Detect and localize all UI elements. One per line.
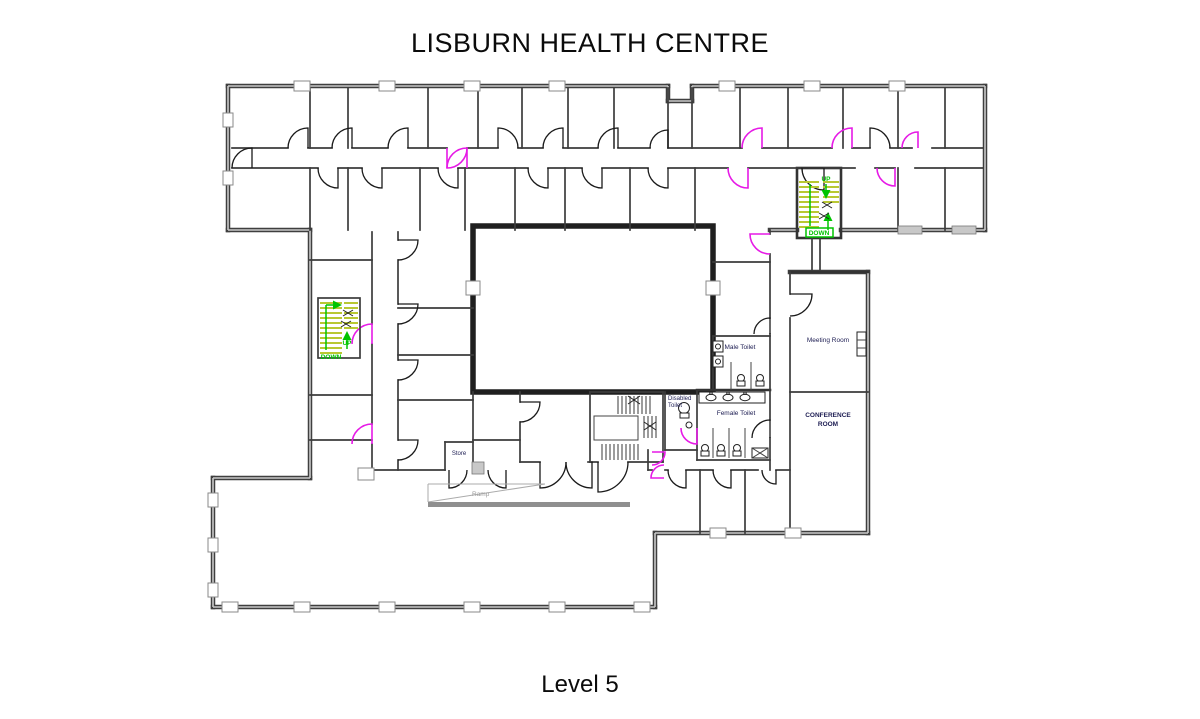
entrance-ramp: [428, 484, 630, 507]
right-stair-up-label: UP: [821, 176, 831, 183]
store-label: Store: [452, 451, 467, 457]
ramp-label: Ramp: [472, 491, 490, 498]
male-toilet-label: Male Toilet: [725, 344, 756, 351]
left-stair-down-label: DOWN: [321, 354, 342, 361]
column-markers: [208, 81, 905, 612]
floor-plan-page: LISBURN HEALTH CENTRE Meeting Room CONF: [0, 0, 1200, 719]
left-stair-up-label: UP: [342, 340, 352, 347]
outer-walls: [213, 86, 985, 607]
right-staircase: [799, 182, 839, 237]
central-staircase: [594, 396, 656, 460]
atrium-void: [473, 226, 713, 392]
floor-plan-drawing: Meeting Room CONFERENCE ROOM Male Toilet…: [0, 0, 1200, 719]
conference-room-label-line1: CONFERENCE: [805, 412, 851, 419]
level-label: Level 5: [0, 671, 1160, 699]
left-staircase: [318, 298, 360, 358]
right-stair-down-label: DOWN: [809, 230, 830, 237]
disabled-toilet-label-line2: Toilet: [668, 403, 682, 409]
meeting-room-label: Meeting Room: [807, 337, 849, 344]
female-toilet-label: Female Toilet: [717, 410, 756, 417]
toilet-fixtures: [679, 332, 867, 458]
conference-room-label-line2: ROOM: [818, 421, 838, 428]
disabled-toilet-label-line1: Disabled: [668, 396, 691, 402]
door-arcs: [232, 128, 890, 492]
